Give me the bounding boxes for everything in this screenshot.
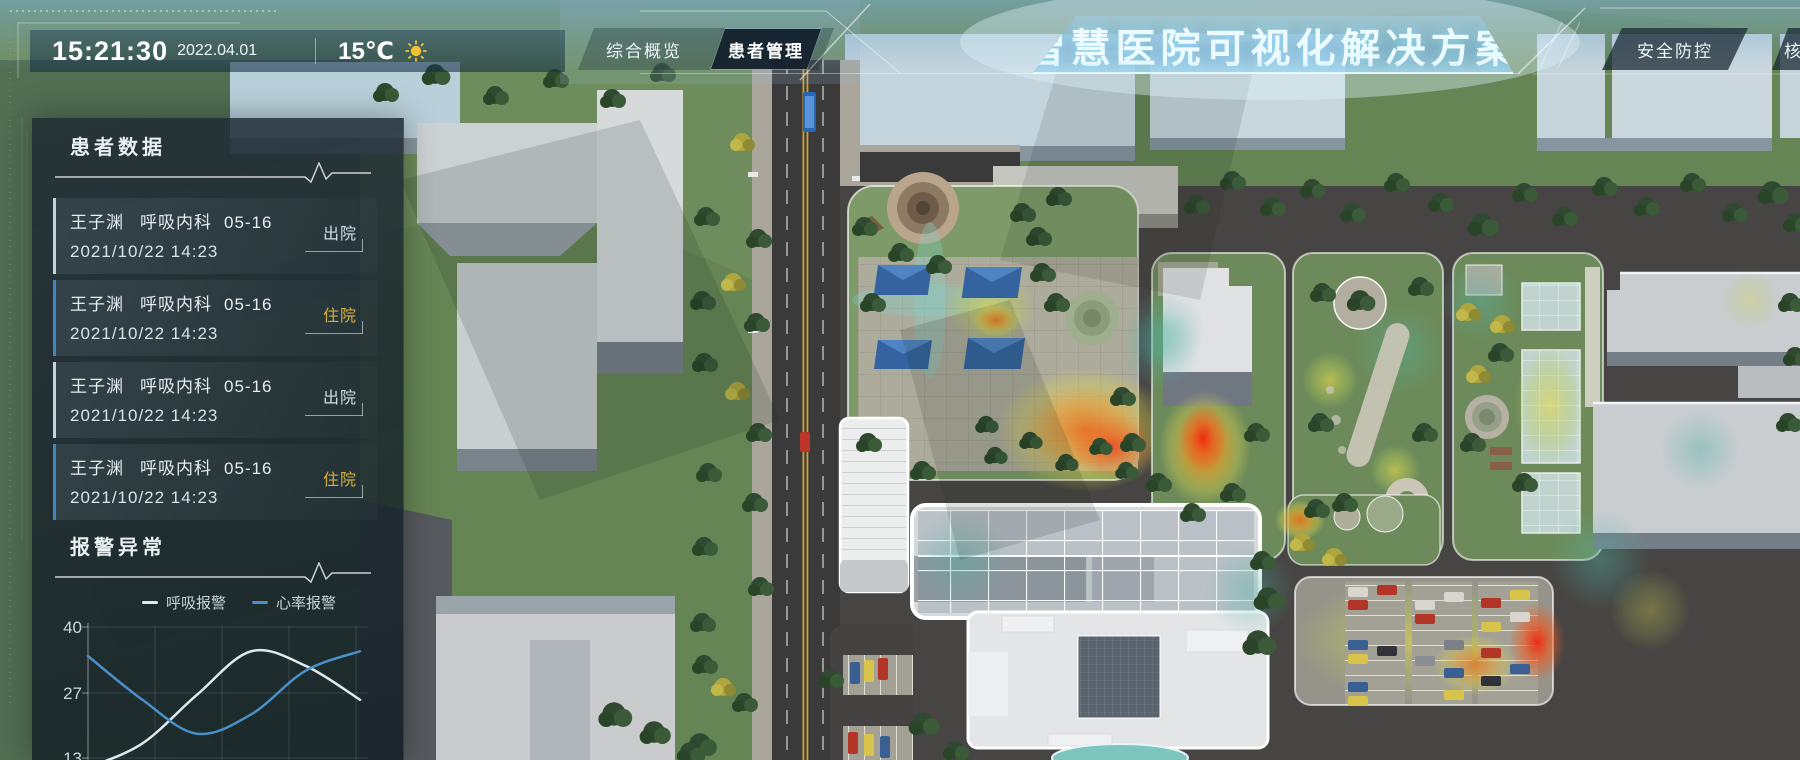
patient-name: 王子渊	[70, 213, 124, 232]
patient-name: 王子渊	[70, 459, 124, 478]
svg-text:13: 13	[63, 749, 82, 760]
patient-bed: 05-16	[224, 213, 272, 232]
section-rule	[55, 562, 403, 588]
chart-legend: 呼吸报警 心率报警	[142, 592, 403, 613]
patient-datetime: 2021/10/22 14:23	[70, 242, 365, 262]
time-weather-bar: 15:21:30 2022.04.01 15℃	[30, 30, 565, 72]
chart-axis	[82, 623, 88, 760]
patient-name: 王子渊	[70, 377, 124, 396]
ecg-pulse-icon	[55, 563, 371, 582]
legend-label: 呼吸报警	[166, 592, 226, 613]
main-nav-left: 综合概览 患者管理	[578, 28, 834, 70]
legend-item-heart-rate[interactable]: 心率报警	[252, 592, 336, 613]
chart-grid	[88, 625, 368, 760]
patient-data-panel: 患者数据 王子渊呼吸内科05-16 2021/10/22 14:23 出院 王子…	[32, 118, 404, 760]
smart-hospital-dashboard: 15:21:30 2022.04.01 15℃ 综合概览 患者管理 智慧医院可视…	[0, 0, 1800, 760]
section-rule	[55, 162, 403, 188]
patient-status-badge: 出院	[323, 220, 357, 244]
banner-underline	[640, 73, 1520, 74]
patient-datetime: 2021/10/22 14:23	[70, 488, 365, 508]
alarm-title: 报警异常	[70, 536, 379, 560]
clock-time: 15:21:30	[52, 36, 168, 67]
patient-bed: 05-16	[224, 295, 272, 314]
temperature-value: 15℃	[338, 37, 394, 66]
y-axis-labels: 40 27 13	[63, 618, 82, 760]
patient-data-title: 患者数据	[70, 136, 379, 160]
patient-department: 呼吸内科	[140, 213, 212, 232]
legend-dash-icon	[252, 601, 268, 604]
patient-department: 呼吸内科	[140, 459, 212, 478]
patient-datetime: 2021/10/22 14:23	[70, 324, 365, 344]
legend-dash-icon	[142, 601, 158, 604]
tab-patient-management[interactable]: 患者管理	[711, 29, 821, 69]
sun-icon	[404, 39, 428, 63]
patient-department: 呼吸内科	[140, 377, 212, 396]
patient-status-badge: 住院	[323, 466, 357, 490]
patient-bed: 05-16	[224, 377, 272, 396]
tab-security[interactable]: 安全防控	[1602, 28, 1748, 70]
divider	[315, 38, 316, 64]
tab-patient-management-frame: 患者管理	[710, 28, 822, 70]
patient-list-item[interactable]: 王子渊呼吸内科05-16 2021/10/22 14:23 出院	[53, 198, 377, 274]
series-respiration-line	[88, 650, 360, 760]
bus	[803, 92, 816, 132]
patient-status-badge: 出院	[323, 384, 357, 408]
patient-list-item[interactable]: 王子渊呼吸内科05-16 2021/10/22 14:23 住院	[53, 280, 377, 356]
ecg-pulse-icon	[55, 163, 371, 182]
title-banner: 智慧医院可视化解决方案	[1032, 16, 1514, 74]
legend-item-respiration[interactable]: 呼吸报警	[142, 592, 226, 613]
patient-list-item[interactable]: 王子渊呼吸内科05-16 2021/10/22 14:23 出院	[53, 362, 377, 438]
patient-name: 王子渊	[70, 295, 124, 314]
tab-overview[interactable]: 综合概览	[578, 28, 710, 70]
patient-datetime: 2021/10/22 14:23	[70, 406, 365, 426]
alarm-line-chart: 40 27 13	[56, 615, 403, 760]
car-on-road	[800, 432, 810, 452]
patient-status-badge: 住院	[323, 302, 357, 326]
page-title: 智慧医院可视化解决方案	[1026, 16, 1521, 74]
patient-list: 王子渊呼吸内科05-16 2021/10/22 14:23 出院 王子渊呼吸内科…	[53, 198, 377, 520]
svg-text:27: 27	[63, 684, 82, 703]
patient-list-item[interactable]: 王子渊呼吸内科05-16 2021/10/22 14:23 住院	[53, 444, 377, 520]
patient-department: 呼吸内科	[140, 295, 212, 314]
clock-date: 2022.04.01	[177, 42, 257, 60]
small-parking-lot	[830, 626, 914, 760]
svg-text:40: 40	[63, 618, 82, 637]
legend-label: 心率报警	[276, 592, 336, 613]
patient-bed: 05-16	[224, 459, 272, 478]
